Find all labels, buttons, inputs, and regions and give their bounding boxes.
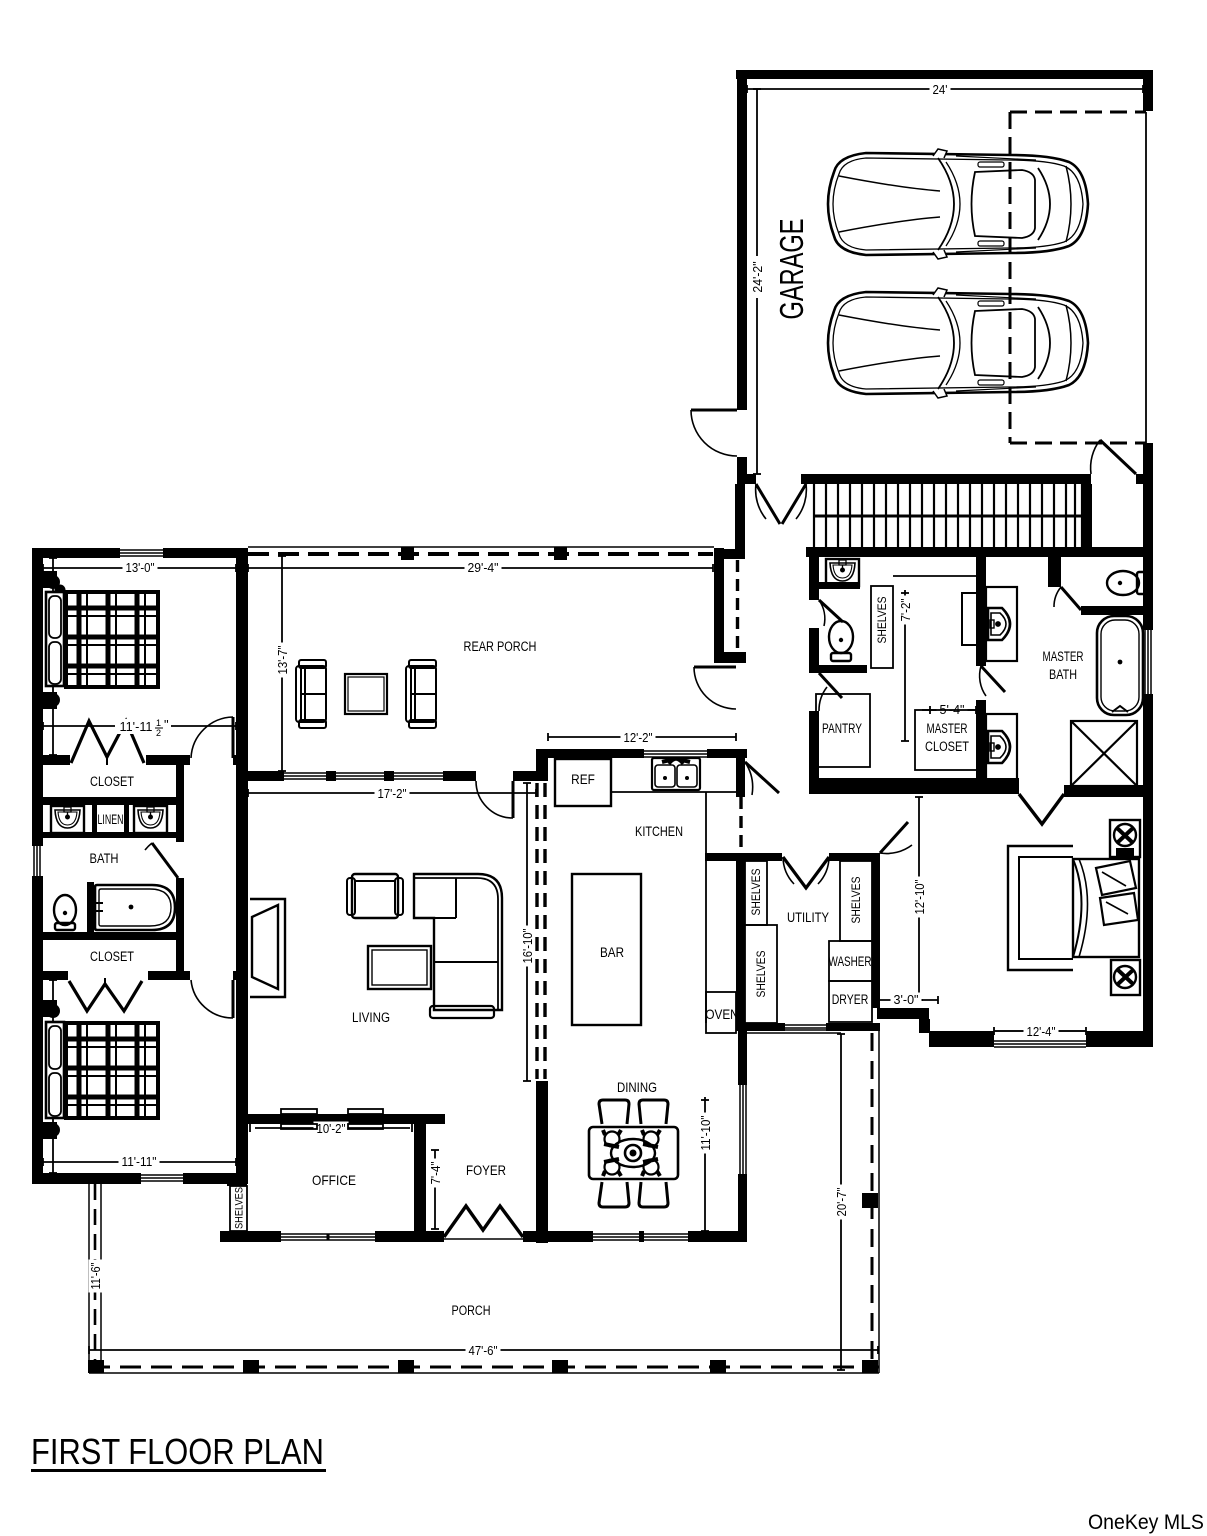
svg-text:LINEN: LINEN [98, 812, 124, 828]
svg-text:12'-10": 12'-10" [912, 880, 927, 915]
svg-text:GARAGE: GARAGE [774, 219, 811, 320]
svg-text:11'-6": 11'-6" [88, 1263, 103, 1290]
svg-text:13'-7": 13'-7" [275, 646, 290, 675]
svg-text:12'-4": 12'-4" [1027, 1024, 1056, 1039]
svg-text:MASTER: MASTER [927, 720, 968, 736]
svg-text:OVEN: OVEN [705, 1006, 738, 1022]
svg-text:24': 24' [933, 82, 948, 97]
svg-text:MASTER: MASTER [1043, 648, 1084, 664]
svg-text:FIRST FLOOR PLAN: FIRST FLOOR PLAN [31, 1433, 324, 1473]
svg-text:7'-2": 7'-2" [898, 599, 913, 622]
svg-text:SHELVES: SHELVES [876, 597, 889, 644]
svg-text:1: 1 [156, 718, 161, 728]
svg-text:BAR: BAR [600, 944, 624, 960]
svg-text:PORCH: PORCH [451, 1303, 490, 1319]
svg-text:": " [164, 717, 169, 732]
svg-text:UTILITY: UTILITY [787, 909, 829, 926]
svg-text:BATH: BATH [1049, 667, 1077, 683]
svg-text:47'-6": 47'-6" [469, 1343, 498, 1358]
svg-text:KITCHEN: KITCHEN [635, 824, 683, 840]
svg-text:REAR PORCH: REAR PORCH [464, 639, 537, 655]
svg-text:BATH: BATH [90, 851, 119, 866]
svg-text:10'-2": 10'-2" [317, 1121, 346, 1136]
svg-text:WASHER: WASHER [828, 953, 871, 969]
svg-text:DINING: DINING [617, 1079, 657, 1095]
svg-text:OneKey MLS: OneKey MLS [1088, 1511, 1204, 1534]
svg-text:SHELVES: SHELVES [755, 951, 768, 998]
svg-text:3'-0": 3'-0" [894, 992, 919, 1007]
svg-text:7'-4": 7'-4" [428, 1162, 443, 1185]
svg-text:SHELVES: SHELVES [750, 869, 763, 916]
svg-text:FOYER: FOYER [466, 1162, 506, 1178]
svg-text:REF: REF [571, 771, 595, 787]
svg-text:11'-11": 11'-11" [122, 1155, 157, 1170]
svg-text:24'-2": 24'-2" [751, 261, 765, 292]
svg-text:11'-11: 11'-11 [120, 719, 153, 734]
svg-text:PANTRY: PANTRY [822, 720, 862, 736]
svg-text:12'-2": 12'-2" [624, 730, 653, 745]
svg-text:SHELVES: SHELVES [850, 877, 863, 924]
svg-text:20'-7": 20'-7" [834, 1188, 849, 1217]
svg-text:17'-2": 17'-2" [378, 786, 407, 801]
svg-text:CLOSET: CLOSET [90, 949, 134, 965]
svg-text:SHELVES: SHELVES [234, 1187, 246, 1229]
svg-text:CLOSET: CLOSET [925, 739, 969, 755]
svg-text:2: 2 [156, 728, 161, 738]
svg-text:11'-10": 11'-10" [698, 1116, 713, 1151]
svg-text:DRYER: DRYER [832, 992, 869, 1008]
svg-text:29'-4": 29'-4" [468, 561, 499, 575]
svg-text:16'-10": 16'-10" [520, 929, 535, 964]
svg-text:CLOSET: CLOSET [90, 774, 134, 790]
svg-text:LIVING: LIVING [352, 1009, 390, 1025]
svg-text:13'-0": 13'-0" [126, 560, 155, 575]
svg-text:OFFICE: OFFICE [312, 1172, 356, 1188]
